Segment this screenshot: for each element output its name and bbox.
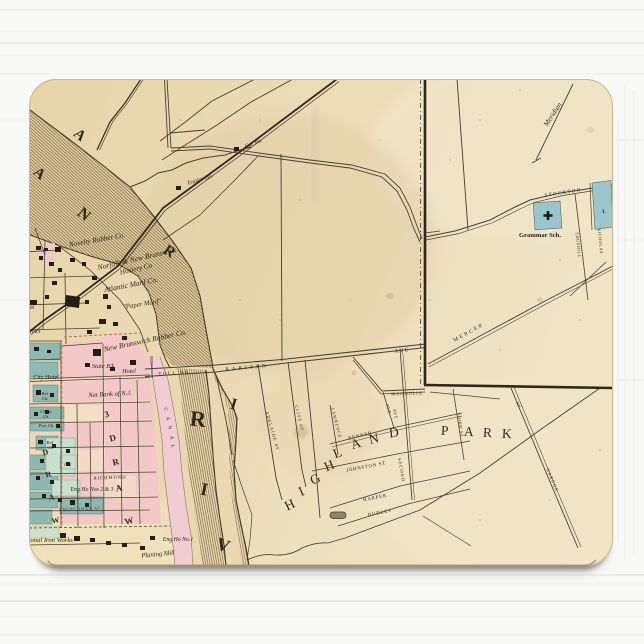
svg-text:D: D — [388, 425, 400, 441]
svg-text:Ch.: Ch. — [42, 396, 49, 401]
svg-text:Hotel: Hotel — [121, 368, 136, 375]
svg-text:Eng Ho Nos 2 & 3: Eng Ho Nos 2 & 3 — [70, 487, 114, 493]
svg-text:Ch.: Ch. — [43, 414, 50, 419]
svg-text:Eng Ho No.1: Eng Ho No.1 — [162, 537, 194, 543]
svg-text:A: A — [464, 424, 475, 440]
svg-text:Grammar Sch.: Grammar Sch. — [519, 232, 561, 239]
svg-text:G Y: G Y — [64, 462, 72, 467]
svg-text:City Hotel: City Hotel — [33, 374, 59, 381]
svg-text:P: P — [441, 423, 449, 438]
svg-text:R: R — [483, 425, 493, 440]
svg-text:State B'k: State B'k — [92, 363, 115, 370]
svg-text:Ch: Ch — [47, 445, 53, 450]
svg-text:Pres Ch: Pres Ch — [39, 423, 54, 428]
svg-text:K: K — [502, 426, 513, 442]
